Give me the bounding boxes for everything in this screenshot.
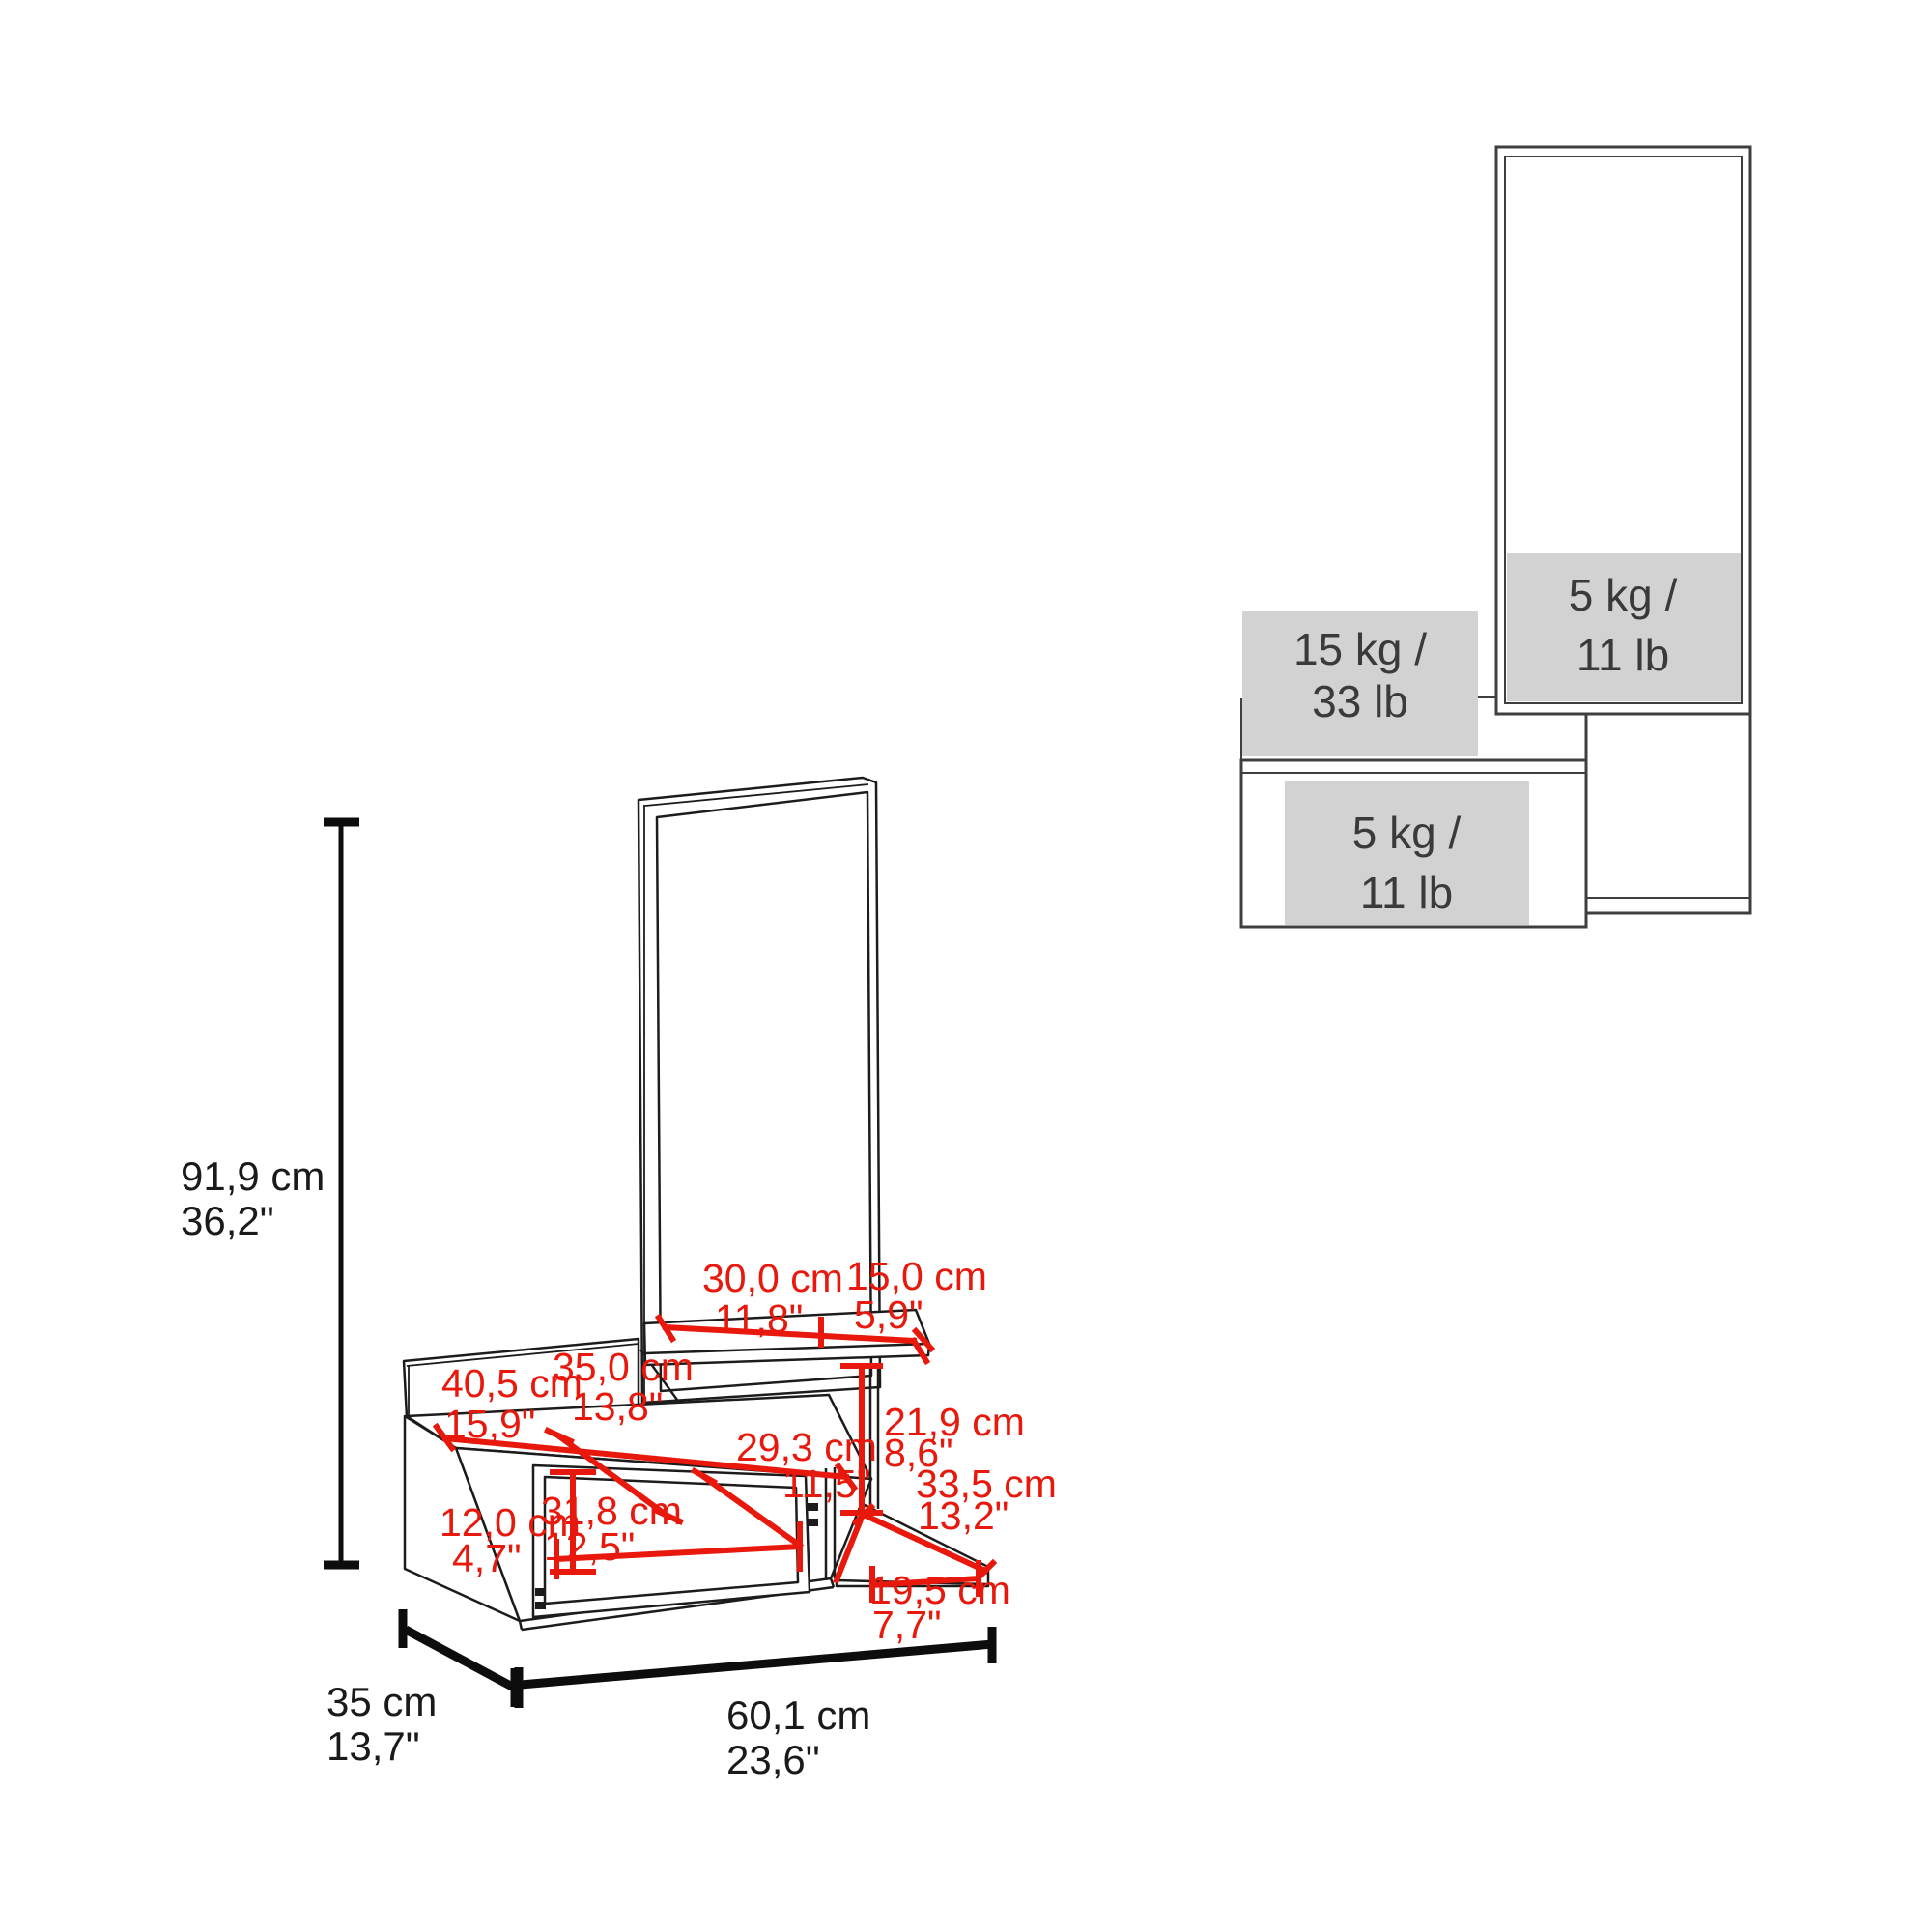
top-surface-capacity-line1: 15 kg / [1293, 624, 1427, 674]
dim-405-cm: 40,5 cm [441, 1361, 582, 1406]
dim-195-inch: 7,7" [872, 1603, 942, 1647]
hinge-left-top [535, 1588, 546, 1596]
furniture-dimension-diagram: 91,9 cm 36,2" 35 cm 13,7" 60,1 cm 23,6" … [0, 0, 1932, 1932]
mirror-shelf-capacity-line1: 5 kg / [1569, 570, 1678, 620]
hinge-right-bottom [808, 1519, 818, 1526]
height-inch-label: 36,2" [181, 1198, 274, 1243]
main-3d-drawing: 91,9 cm 36,2" 35 cm 13,7" 60,1 cm 23,6" … [181, 778, 1057, 1782]
drawer-capacity-line1: 5 kg / [1352, 808, 1462, 858]
hinge-left-bottom [535, 1602, 546, 1609]
capacity-front-view: 5 kg / 11 lb 15 kg / 33 lb 5 kg / 11 lb [1241, 147, 1750, 927]
cabinet-bottom-cap-left [520, 1621, 522, 1630]
width-line [521, 1644, 993, 1685]
dim-350-inch: 13,8" [572, 1384, 663, 1429]
dim-318-inch: 12,5" [544, 1524, 635, 1569]
width-inch-label: 23,6" [726, 1737, 820, 1782]
depth-inch-label: 13,7" [327, 1723, 420, 1769]
dim-300-inch: 11,8" [715, 1296, 803, 1341]
cabinet-bottom-cap-right [831, 1578, 834, 1587]
dim-300-cm: 30,0 cm [702, 1256, 843, 1300]
width-cm-label: 60,1 cm [726, 1692, 870, 1738]
diagram-canvas: 91,9 cm 36,2" 35 cm 13,7" 60,1 cm 23,6" … [0, 0, 1932, 1932]
depth-cm-label: 35 cm [327, 1679, 437, 1724]
panel-below-mirror [1586, 714, 1750, 913]
dim-120-inch: 4,7" [452, 1536, 522, 1580]
top-surface-capacity-line2: 33 lb [1312, 676, 1408, 726]
dim-150-inch: 5,9" [854, 1293, 923, 1337]
dim-335-inch: 13,2" [918, 1493, 1009, 1538]
height-cm-label: 91,9 cm [181, 1153, 325, 1199]
dim-293-inch: 11,5" [782, 1462, 870, 1506]
dim-405-inch: 15,9" [444, 1402, 535, 1446]
mirror-shelf-capacity-line2: 11 lb [1577, 630, 1669, 680]
drawer-capacity-line2: 11 lb [1360, 867, 1453, 918]
